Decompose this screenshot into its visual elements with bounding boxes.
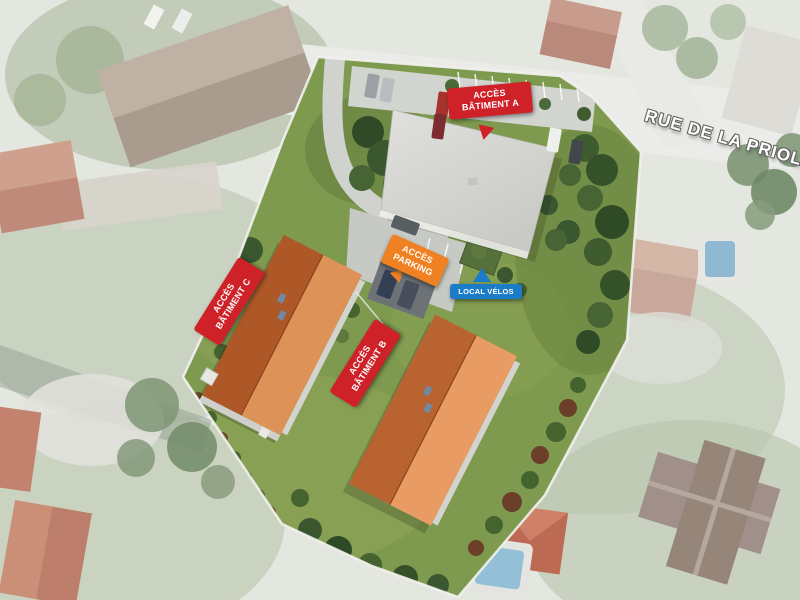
label-line: LOCAL VÉLOS (454, 287, 518, 296)
arrow-up-icon (473, 268, 491, 282)
label-local-velos[interactable]: LOCAL VÉLOS (450, 284, 522, 299)
aerial-map (0, 0, 800, 600)
faded-house-salmon (0, 500, 92, 600)
faded-house-red (0, 140, 85, 233)
rooftop-unit (468, 178, 477, 185)
faded-pool (705, 241, 735, 277)
site-plan-canvas: ACCÈS BÂTIMENT A ACCÈS BÂTIMENT C ACCÈS … (0, 0, 800, 600)
arrow-down-icon (476, 124, 495, 141)
